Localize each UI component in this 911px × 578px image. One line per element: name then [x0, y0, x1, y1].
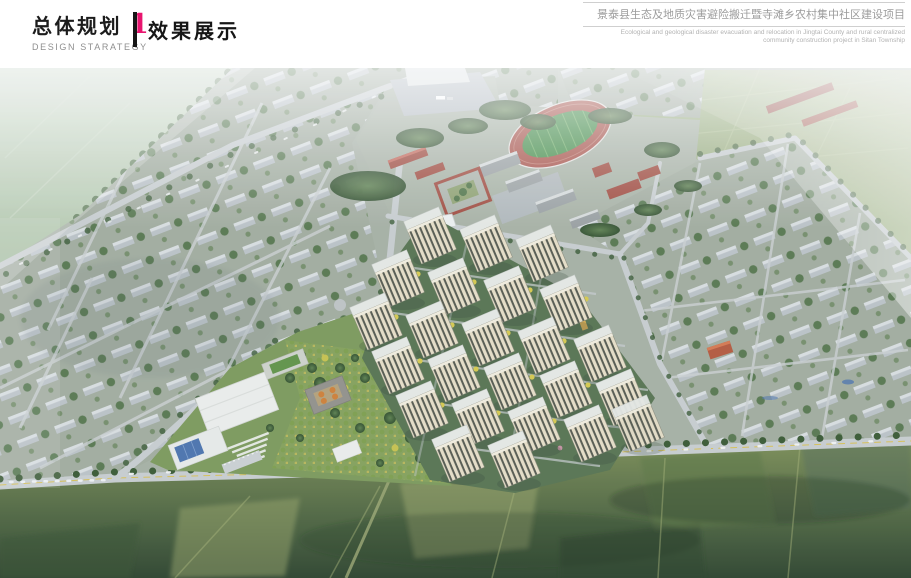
aerial-rendering [0, 68, 911, 578]
project-subtitle: Ecological and geological disaster evacu… [583, 29, 905, 45]
slide: 总体规划 1 DESIGN STARATEGY 效果展示 景泰县生态及地质灾害避… [0, 0, 911, 578]
section-header: 总体规划 1 DESIGN STARATEGY [32, 10, 149, 52]
project-header: 景泰县生态及地质灾害避险搬迁暨寺滩乡农村集中社区建设项目 Ecological … [583, 2, 905, 45]
atmosphere-haze [0, 68, 911, 578]
section-subtitle: DESIGN STARATEGY [32, 42, 149, 52]
header-divider [133, 12, 137, 47]
project-title: 景泰县生态及地质灾害避险搬迁暨寺滩乡农村集中社区建设项目 [583, 2, 905, 27]
page-title: 效果展示 [148, 15, 240, 44]
section-title: 总体规划 [32, 10, 122, 39]
